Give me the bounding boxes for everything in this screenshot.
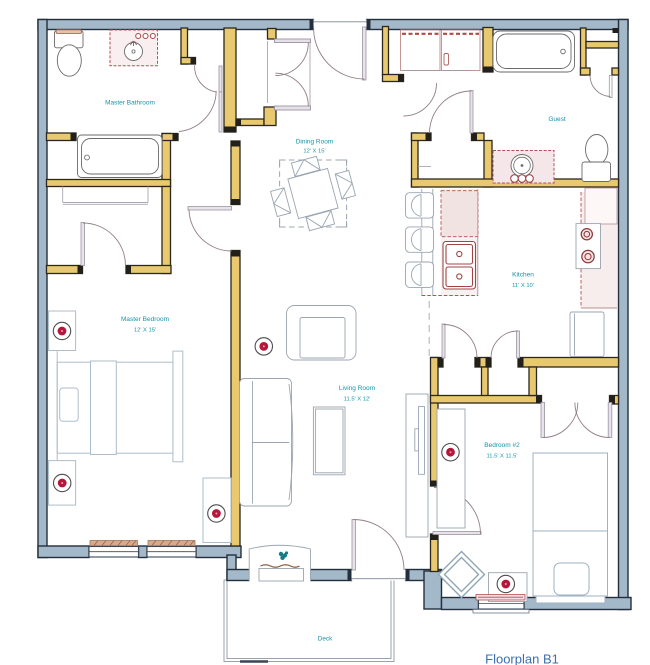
svg-text:Floorplan B1: Floorplan B1	[485, 652, 559, 665]
svg-text:11.5' X 11.5': 11.5' X 11.5'	[486, 454, 517, 460]
svg-text:Deck: Deck	[318, 636, 333, 643]
svg-text:11' X 10': 11' X 10'	[512, 283, 534, 289]
svg-text:11.5' X 12': 11.5' X 12'	[344, 397, 371, 403]
svg-text:Living Room: Living Room	[339, 385, 375, 392]
svg-text:Master Bedroom: Master Bedroom	[121, 316, 169, 323]
svg-text:Dining Room: Dining Room	[296, 139, 334, 146]
svg-text:Bedroom #2: Bedroom #2	[484, 442, 520, 449]
svg-text:12' X 15': 12' X 15'	[303, 149, 325, 155]
svg-text:12' X 15': 12' X 15'	[134, 328, 156, 334]
svg-text:Guest: Guest	[548, 116, 566, 123]
svg-text:Kitchen: Kitchen	[512, 272, 534, 279]
svg-text:Master Bathroom: Master Bathroom	[105, 100, 155, 107]
